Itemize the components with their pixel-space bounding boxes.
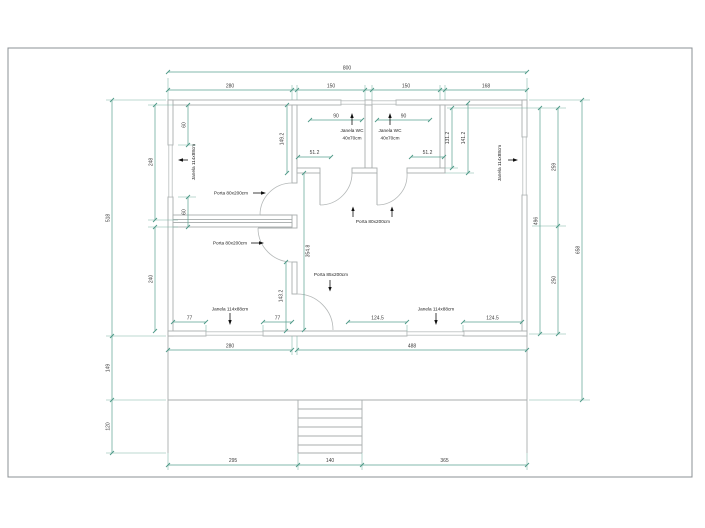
label-window-room2: Janela 114x88cm [212, 307, 248, 312]
label-window-left: Janela 114x88cm [191, 144, 196, 180]
dim-window-left-bottom: 60 [182, 209, 188, 215]
label-door-room2: Porta 80x200cm [213, 241, 247, 246]
label-door-wc: Porta 80x200cm [356, 219, 390, 224]
dim-hall-upper: 149.2 [280, 133, 286, 146]
dim-wc2-door-offset: 51.2 [423, 150, 433, 156]
dim-hall-full: 354.8 [306, 245, 312, 258]
dim-wc-inner-height: 131.2 [445, 132, 451, 145]
dim-right-seg-1: 259 [552, 163, 558, 172]
label-window-wc1-line1: Janela WC [341, 128, 365, 133]
label-window-wc2-line2: 40x70cm [380, 136, 399, 141]
window-wc1 [341, 101, 365, 104]
dim-wc1-door-offset: 51.2 [310, 150, 320, 156]
dim-bottom-right: 488 [408, 344, 417, 350]
drawing-page-border [8, 48, 692, 477]
dim-left-stairs: 120 [106, 422, 112, 431]
dim-left-overall: 518 [106, 214, 112, 223]
dim-room2-window-right: 77 [275, 316, 281, 322]
dim-living-window-right: 124.5 [486, 316, 499, 322]
window-right [523, 137, 526, 195]
dim-top-seg-4: 168 [482, 84, 491, 90]
dim-room1-height: 248 [149, 158, 155, 167]
dim-hall-lower: 143.2 [279, 290, 285, 303]
dim-bottom-left: 280 [226, 344, 235, 350]
dim-site-seg-2: 140 [326, 458, 335, 464]
dim-top-seg-1: 280 [226, 84, 235, 90]
floor-plan-screenshot: 800 280 150 150 168 518 149 120 248 240 … [0, 0, 705, 528]
dim-wc-outer-height: 141.2 [461, 132, 467, 145]
label-window-wc1-line2: 40x70cm [342, 136, 361, 141]
dim-right-inner: 496 [534, 217, 540, 226]
label-window-wc2-line1: Janela WC [379, 128, 403, 133]
label-window-right: Janela 114x88cm [497, 145, 502, 181]
label-door-living: Porta 85x200cm [314, 272, 348, 277]
label-door-room1: Porta 80x200cm [214, 191, 248, 196]
dim-top-seg-2: 150 [327, 84, 336, 90]
dim-wc2-width: 90 [401, 114, 407, 120]
dim-top-seg-3: 150 [402, 84, 411, 90]
dim-right-seg-2: 250 [552, 276, 558, 285]
window-wc2 [372, 101, 396, 104]
dim-site-seg-1: 295 [229, 458, 238, 464]
dim-window-left-top: 60 [182, 122, 188, 128]
dim-living-window-left: 124.5 [371, 316, 384, 322]
dim-room2-height: 240 [149, 275, 155, 284]
dim-room2-window-left: 77 [187, 316, 193, 322]
window-room2 [206, 332, 263, 335]
dim-top-overall: 800 [343, 66, 352, 72]
dim-right-overall: 658 [576, 246, 582, 255]
window-left [169, 145, 172, 197]
dim-wc1-width: 90 [333, 114, 339, 120]
window-living [407, 332, 464, 335]
dim-site-seg-3: 365 [440, 458, 449, 464]
dim-left-porch: 149 [106, 364, 112, 373]
label-window-living: Janela 114x88cm [418, 307, 454, 312]
floor-plan-canvas: 800 280 150 150 168 518 149 120 248 240 … [0, 0, 705, 528]
